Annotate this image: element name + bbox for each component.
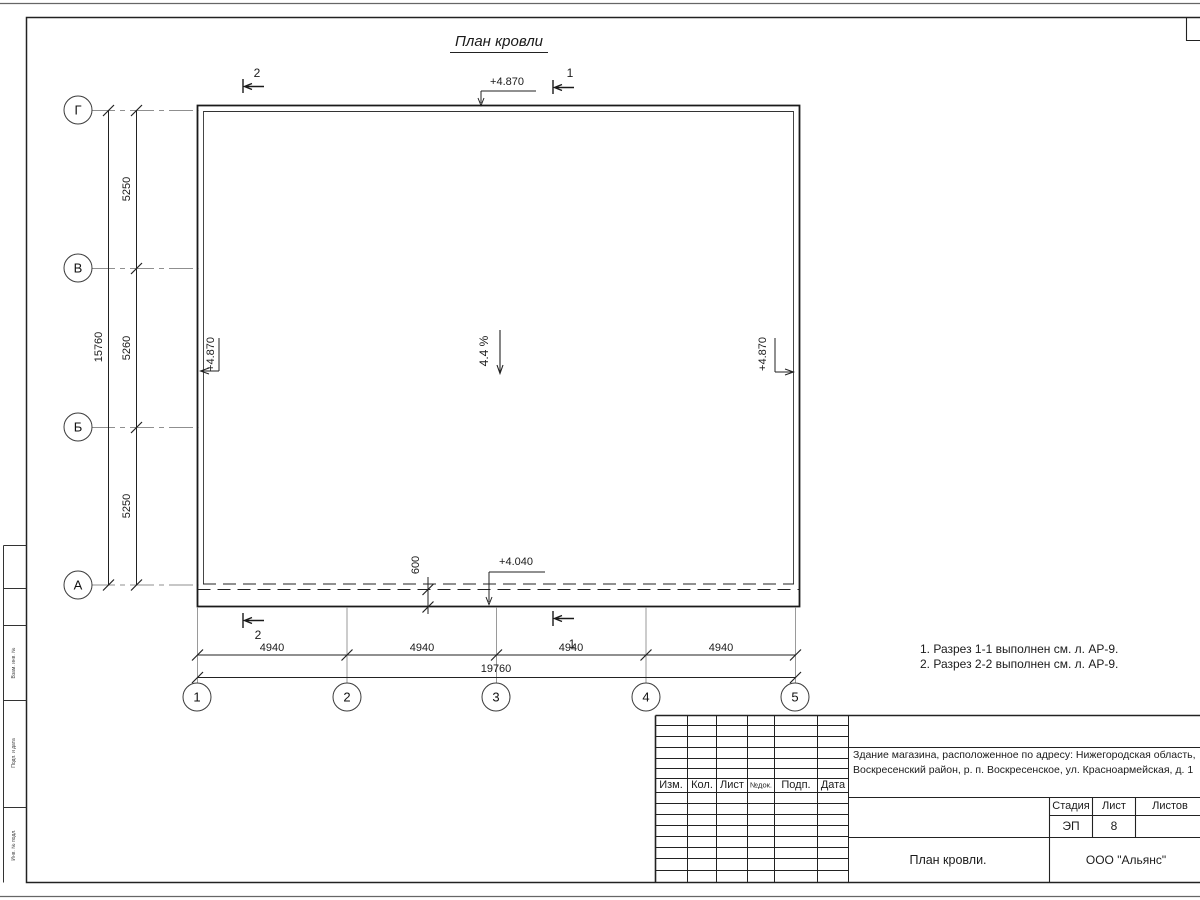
dim-col-span-1: 4940 [260,642,284,654]
tb-sheets-label: Листов [1152,800,1188,812]
section-1-label-bottom: 1 [569,637,576,651]
tb-sheet-value: 8 [1111,819,1118,833]
page-title: План кровли [450,33,548,53]
section-1-label-top: 1 [567,66,574,80]
tb-stage-value: ЭП [1062,819,1079,833]
note-line-2: 2. Разрез 2-2 выполнен см. л. АР-9. [920,657,1118,672]
building-outline [198,106,800,607]
elevation-leaders [201,91,794,605]
elevation-right: +4.870 [757,337,769,371]
axis-bubble-row-a: А [64,571,93,600]
elevation-top: +4.870 [490,76,524,88]
tb-sheet-label: Лист [1102,800,1126,812]
section-marks [243,79,574,628]
note-line-1: 1. Разрез 1-1 выполнен см. л. АР-9. [920,642,1118,657]
tb-col-izm: Изм. [659,779,683,791]
dim-row-span-1: 5250 [121,177,133,201]
dimension-lines [109,110,796,678]
tb-object-description: Здание магазина, расположенное по адресу… [853,748,1200,796]
tb-description-line-2: Воскресенский район, р. п. Воскресенское… [853,763,1200,778]
elevation-low: +4.040 [499,556,533,568]
elevation-left: +4.870 [205,337,217,371]
axis-bubble-row-v: В [64,254,93,283]
tb-col-data: Дата [821,779,845,791]
dim-row-span-3: 5250 [121,494,133,518]
tb-col-list: Лист [720,779,744,791]
axis-bubble-col-5: 5 [781,683,810,712]
dim-overhang: 600 [410,556,422,574]
axis-bubble-col-1: 1 [183,683,212,712]
tick-marks [103,105,801,683]
dim-col-span-4: 4940 [709,642,733,654]
margin-label-vzam: Взам. инв. № [11,648,17,679]
notes-block: 1. Разрез 1-1 выполнен см. л. АР-9. 2. Р… [920,642,1118,672]
tb-stage-label: Стадия [1052,800,1090,812]
dim-row-total: 15760 [93,332,105,363]
dim-col-total: 19760 [481,663,512,675]
slope-label: 4.4 % [477,336,491,367]
tb-col-kol: Кол. [691,779,713,791]
axis-bubble-col-3: 3 [482,683,511,712]
margin-label-inv: Инв. № подл. [11,829,17,860]
axis-bubble-row-b: Б [64,413,93,442]
drawing-sheet: План кровли Г В Б А 1 2 3 4 5 5250 5260 … [0,0,1200,900]
slope-arrow [497,330,503,374]
axis-bubble-col-2: 2 [333,683,362,712]
tb-doc-title: План кровли. [909,853,986,867]
hidden-edge-dashed [198,584,800,590]
tb-col-ndok: №док. [750,781,772,790]
axis-bubble-row-g: Г [64,96,93,125]
dim-col-span-2: 4940 [410,642,434,654]
margin-label-podp: Подп. и дата [11,738,17,767]
axis-bubble-col-4: 4 [632,683,661,712]
dim-row-span-2: 5260 [121,336,133,360]
tb-company: ООО "Альянс" [1086,853,1166,867]
section-2-label-top: 2 [254,66,261,80]
tb-col-podp: Подп. [781,779,810,791]
tb-description-line-1: Здание магазина, расположенное по адресу… [853,748,1200,763]
section-2-label-bottom: 2 [255,628,262,642]
